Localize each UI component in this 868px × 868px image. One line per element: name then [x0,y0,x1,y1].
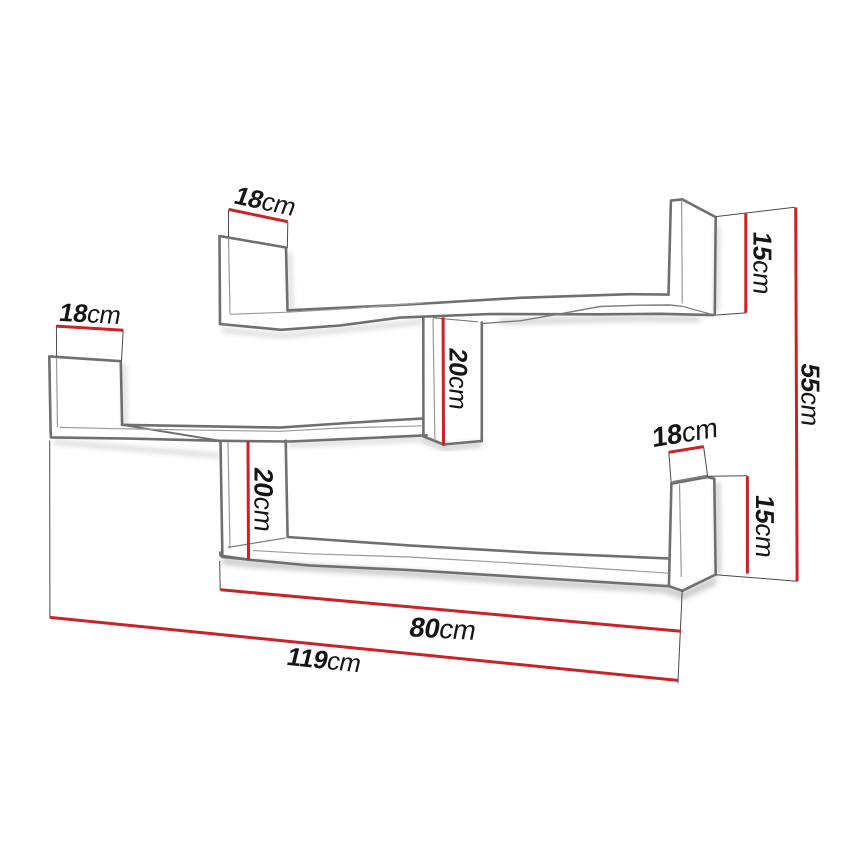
svg-text:15cm: 15cm [750,493,780,560]
svg-text:15cm: 15cm [747,230,777,297]
svg-text:18cm: 18cm [57,299,123,330]
svg-text:20cm: 20cm [443,346,471,411]
svg-text:20cm: 20cm [249,466,279,534]
svg-text:80cm: 80cm [407,612,479,646]
svg-text:55cm: 55cm [796,362,826,429]
